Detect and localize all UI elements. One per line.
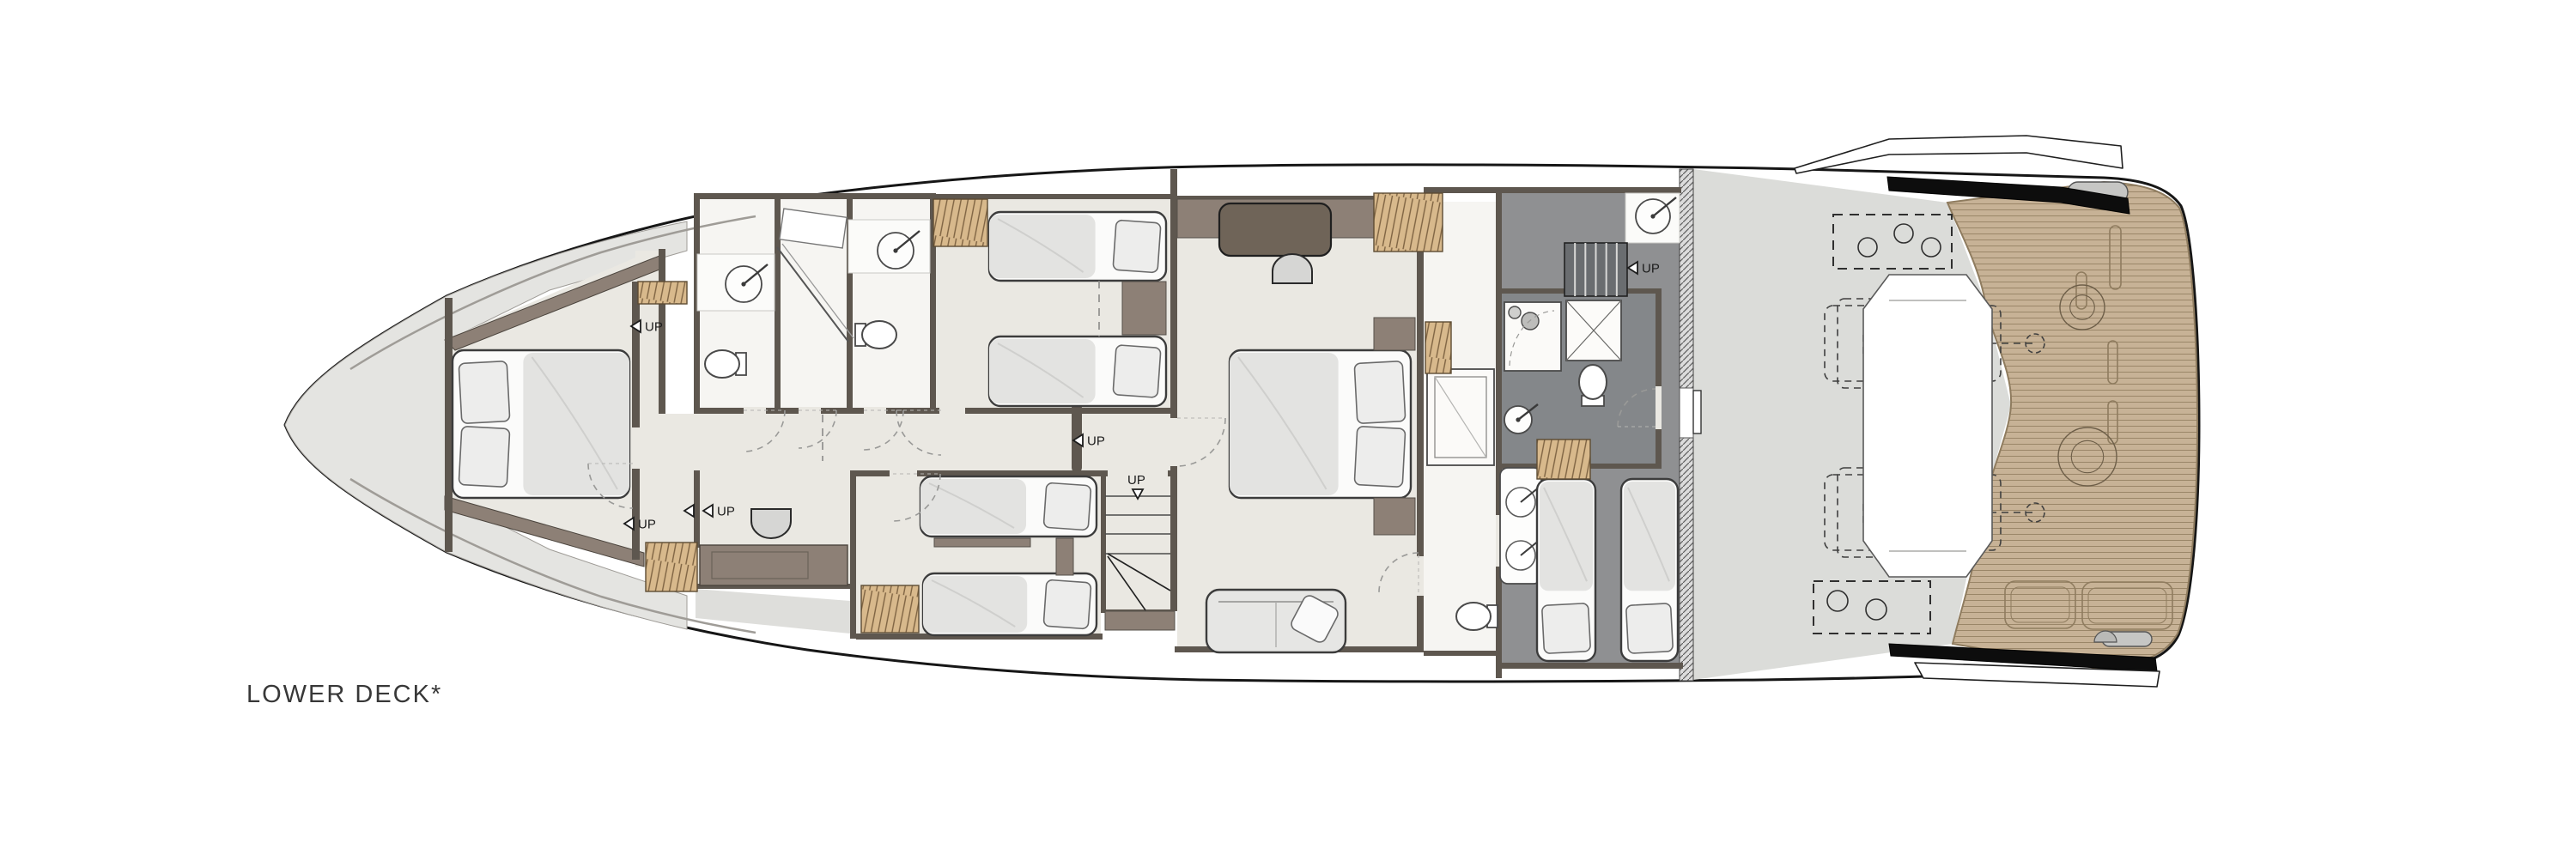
twin2-wardrobe: [861, 585, 919, 633]
crew-toilet: [1579, 365, 1607, 406]
crew-staircase: [1564, 243, 1627, 296]
twin-cabin1-bed1: [989, 212, 1166, 281]
vip-double-bed: [453, 350, 629, 498]
twin1-wardrobe: [933, 199, 987, 246]
master-toilet: [1456, 603, 1498, 630]
deck-label: LOWER DECK*: [246, 681, 442, 708]
crew-shower-tray: [1566, 300, 1621, 361]
svg-text:UP: UP: [645, 320, 663, 335]
bathroom1-toilet: [705, 350, 746, 378]
twin2-shelf: [934, 538, 1030, 547]
master-desk-chair: [1273, 254, 1312, 283]
lower-deck-floorplan: UPUPUPUPUPUP LOWER DECK*: [0, 0, 2576, 867]
radar-arch-plan: [1795, 136, 2123, 173]
floorplan-stage: { "title": { "label": "LOWER DECK*" }, "…: [0, 0, 2576, 867]
corridor-sideboard: [1105, 611, 1175, 630]
master-vanity: [1500, 468, 1541, 584]
master-headboard-bottom: [1374, 498, 1415, 535]
office-desk: [700, 545, 848, 585]
crew-shower: [1504, 302, 1561, 371]
svg-text:UP: UP: [638, 518, 656, 532]
engine-room-tank: [1863, 275, 1992, 577]
twin-cabin1-bed2: [989, 336, 1166, 406]
office-wardrobe: [646, 543, 697, 591]
fwd-wardrobe-top: [638, 282, 687, 304]
master-headboard-top: [1374, 318, 1415, 350]
crew-bed1: [1537, 479, 1595, 661]
office-chair: [751, 509, 791, 538]
twin-cabin2-bed2: [923, 573, 1097, 635]
svg-text:UP: UP: [717, 505, 735, 519]
master-wardrobe: [1374, 193, 1443, 252]
svg-text:UP: UP: [1087, 434, 1105, 449]
lobby-wardrobe: [1425, 322, 1451, 373]
twin1-nightstand: [1122, 282, 1166, 335]
bathroom2-toilet: [855, 321, 896, 349]
master-sofa: [1206, 590, 1346, 652]
twin2-nightstand: [1056, 538, 1073, 575]
master-desk: [1219, 203, 1331, 256]
crew-bed2: [1621, 479, 1678, 661]
master-shower: [1427, 369, 1494, 465]
svg-text:UP: UP: [1127, 473, 1145, 488]
engine-room-door: [1680, 388, 1701, 438]
twin-cabin2-bed1: [920, 476, 1097, 537]
crew-wardrobe: [1537, 440, 1590, 479]
svg-text:UP: UP: [1642, 262, 1660, 276]
master-double-bed: [1230, 350, 1411, 498]
